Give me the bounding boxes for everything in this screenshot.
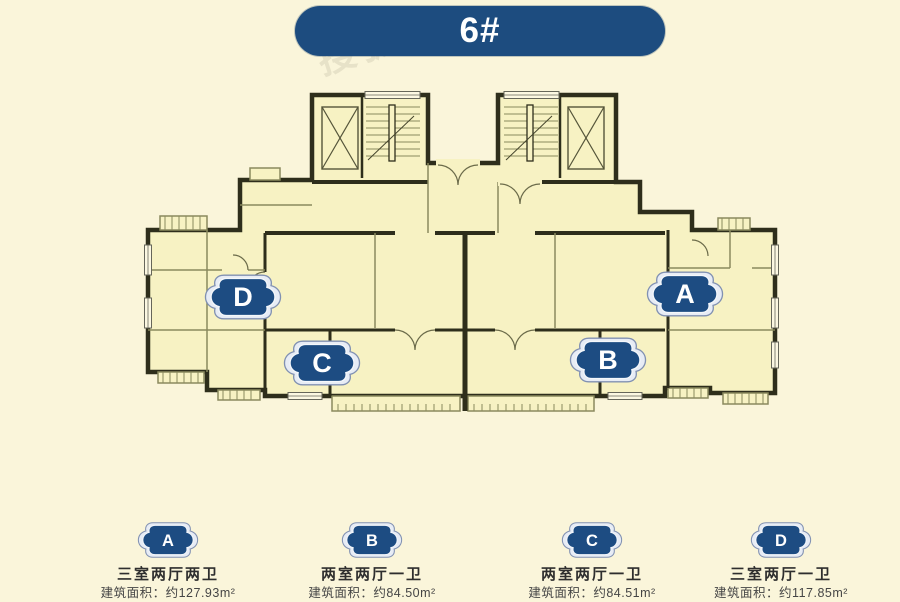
legend-badge-c: C	[561, 522, 623, 558]
legend-item-d: D 三室两厅一卫 建筑面积：约117.85m²	[686, 522, 876, 602]
legend-badge-c-label: C	[586, 532, 598, 550]
legend: A 三室两厅两卫 建筑面积：约127.93m² B 两室两厅一卫 建筑面积：约8…	[0, 522, 900, 600]
legend-unit-area: 建筑面积：约127.93m²	[73, 585, 263, 602]
legend-badge-d-label: D	[775, 532, 787, 550]
floorplan-sheet: 搜狐 搜狐 6#	[0, 0, 900, 600]
legend-badge-b: B	[341, 522, 403, 558]
unit-badge-c: C	[284, 341, 359, 385]
legend-item-b: B 两室两厅一卫 建筑面积：约84.50m²	[277, 522, 467, 602]
unit-badge-c-label: C	[312, 348, 332, 378]
unit-badge-b-label: B	[598, 345, 618, 375]
legend-unit-area: 建筑面积：约117.85m²	[686, 585, 876, 602]
legend-unit-area: 建筑面积：约84.51m²	[497, 585, 687, 602]
floor-plan: D C B A	[0, 0, 900, 600]
legend-badge-b-label: B	[366, 532, 378, 550]
unit-badge-d: D	[205, 275, 280, 319]
legend-unit-type: 三室两厅一卫	[686, 565, 876, 585]
legend-item-a: A 三室两厅两卫 建筑面积：约127.93m²	[73, 522, 263, 602]
legend-unit-type: 三室两厅两卫	[73, 565, 263, 585]
legend-badge-a: A	[137, 522, 199, 558]
legend-unit-type: 两室两厅一卫	[497, 565, 687, 585]
legend-unit-area: 建筑面积：约84.50m²	[277, 585, 467, 602]
legend-badge-a-label: A	[162, 532, 174, 550]
unit-badge-b: B	[570, 338, 645, 382]
building-outline	[148, 95, 775, 396]
legend-badge-d: D	[750, 522, 812, 558]
unit-badge-a-label: A	[675, 279, 695, 309]
unit-badge-d-label: D	[233, 282, 253, 312]
legend-unit-type: 两室两厅一卫	[277, 565, 467, 585]
unit-badge-a: A	[647, 272, 722, 316]
legend-item-c: C 两室两厅一卫 建筑面积：约84.51m²	[497, 522, 687, 602]
